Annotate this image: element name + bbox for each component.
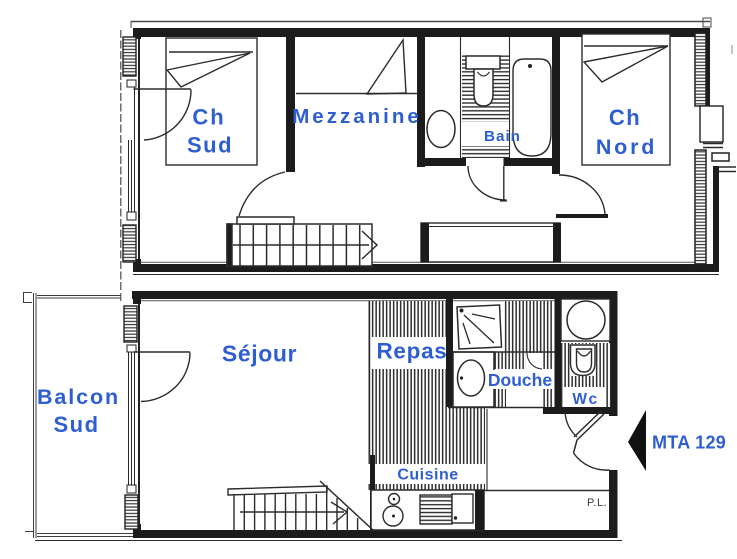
svg-text:Repas: Repas [376,339,447,364]
svg-text:Nord: Nord [596,135,657,159]
svg-text:Sud: Sud [187,133,233,158]
svg-text:Mezzanine: Mezzanine [292,105,422,128]
svg-text:Douche: Douche [488,370,552,390]
svg-text:P.L.: P.L. [587,497,607,509]
svg-text:Balcon: Balcon [37,385,120,409]
svg-text:Sud: Sud [53,412,99,437]
svg-text:Cuisine: Cuisine [397,467,458,484]
svg-text:Ch: Ch [609,105,641,130]
svg-text:MTA 129: MTA 129 [652,433,726,453]
svg-text:Wc: Wc [572,391,598,408]
svg-text:Séjour: Séjour [222,341,297,367]
svg-text:Bain: Bain [484,128,521,145]
svg-text:Ch: Ch [192,105,225,130]
